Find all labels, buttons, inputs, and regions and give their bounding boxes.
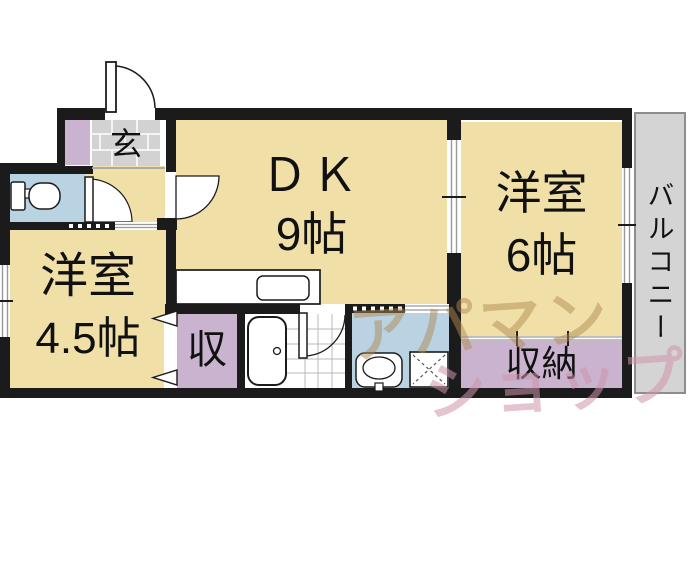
western6-label: 洋室	[461, 168, 622, 218]
bathtub-icon	[248, 317, 286, 385]
kitchen-counter-icon	[176, 270, 320, 304]
wash-basin-icon	[356, 353, 402, 391]
toilet-door-icon	[85, 177, 132, 222]
western6-size-label: 6帖	[461, 228, 622, 282]
sliding-door-washroom	[405, 304, 449, 313]
washer-pan-icon	[410, 352, 448, 387]
western45-label: 洋室	[10, 250, 166, 304]
toilet-icon	[11, 182, 60, 210]
entrance-door-icon	[106, 62, 155, 112]
dk-size-label: 9帖	[176, 208, 447, 260]
closet-shuno-label: 収納	[461, 342, 622, 386]
kitchen-sink-icon	[257, 276, 309, 300]
genkan-label: 玄	[92, 122, 160, 166]
bath-tile-lines	[286, 314, 345, 388]
western45-size-label: 4.5帖	[10, 314, 166, 364]
dk-label: ＤＫ	[176, 150, 447, 200]
sliding-door-hall-45	[115, 222, 157, 230]
balcony-label: バルコニー	[640, 158, 676, 368]
bathroom-door-icon	[299, 313, 345, 358]
floor-plan: 玄 ＤＫ 9帖 洋室 6帖 洋室 4.5帖 収 収納 バルコニー アパマン ショ…	[0, 0, 690, 575]
closet-shu-label: 収	[177, 320, 237, 380]
